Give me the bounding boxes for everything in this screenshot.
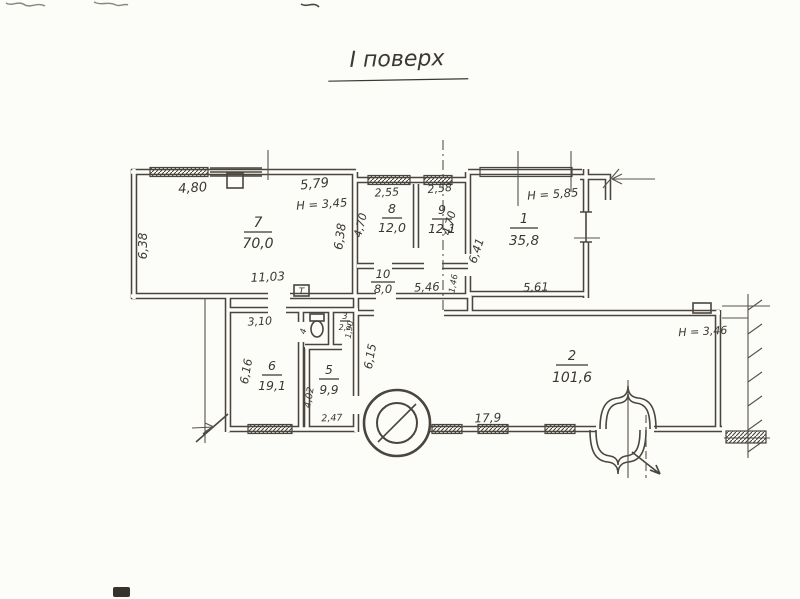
dim-door: 1,46 [447, 273, 460, 294]
room2-area: 101,6 [552, 370, 592, 386]
room10-number: 10 [376, 267, 391, 281]
walls-layer [131, 169, 722, 432]
room5-number: 5 [325, 363, 333, 377]
dim-room7-top-right: 5,79 [299, 176, 329, 194]
toilet-tank-fixture [310, 314, 324, 321]
window-room2-bottom-2 [478, 425, 508, 434]
room7-area: 70,0 [242, 236, 273, 252]
room10-area: 8,0 [374, 282, 392, 296]
page-title: І поверх [349, 46, 445, 73]
room8-area: 12,0 [378, 220, 406, 235]
dim-room2-bottom: 17,9 [474, 411, 501, 426]
room7-height: Н = 3,45 [296, 195, 348, 213]
title-underline [328, 79, 468, 81]
walls-inner-layer [131, 169, 722, 432]
room7-number: 7 [254, 215, 263, 231]
dim-room6-top: 3,10 [247, 314, 272, 328]
room1-area: 35,8 [509, 233, 539, 249]
room6-number: 6 [268, 358, 276, 373]
room2-number: 2 [568, 349, 576, 364]
leader-arrow [612, 174, 655, 184]
scan-artifact-mark [6, 3, 45, 6]
window-room2-bottom-3 [545, 425, 575, 434]
wall-extension-lines [722, 306, 770, 438]
scan-artifact-mark [94, 2, 128, 6]
dim-room8-top: 2,55 [374, 185, 399, 199]
dim-room7-bottom: 11,03 [250, 269, 285, 285]
scan-artifact-blob [113, 587, 130, 597]
window-room7-top [150, 168, 208, 177]
dim-room9-top: 2,58 [427, 181, 453, 196]
scan-artifact-mark [301, 4, 319, 7]
room6-area: 19,1 [258, 378, 286, 393]
windows-layer [150, 168, 766, 444]
room4-number: 4 [299, 328, 310, 336]
labels-layer: 7 70,0 4,80 5,79 Н = 3,45 6,38 6,38 11,0… [136, 176, 728, 426]
dim-room7-left: 6,38 [136, 232, 150, 259]
dim-room7-right: 6,38 [331, 222, 349, 251]
room1-height: Н = 5,85 [527, 185, 579, 203]
room8-number: 8 [388, 201, 396, 216]
scan-artifacts [6, 2, 319, 597]
floor-plan-svg: І поверх [0, 0, 800, 599]
plan-title-group: І поверх [328, 46, 469, 81]
window-room8-top [368, 176, 410, 185]
window-room2-bottom-1 [432, 425, 462, 434]
room2-height: Н = 3,46 [678, 324, 728, 340]
entrance-canopy-outer [590, 430, 646, 474]
room5-area: 9,9 [319, 383, 338, 397]
dim-room7-top-left: 4,80 [178, 180, 208, 197]
window-room6-bottom [248, 425, 292, 434]
entrance-canopy-outer-line [596, 430, 640, 465]
dim-room2-left: 6,15 [361, 342, 379, 370]
scanned-floor-plan-page: І поверх [0, 0, 800, 599]
dim-room5-bottom: 2,47 [321, 413, 343, 425]
dim-room6-left: 6,16 [237, 357, 255, 385]
exterior-hatch-bar [726, 431, 766, 443]
toilet-bowl-fixture [311, 321, 323, 337]
room1-number: 1 [520, 212, 528, 227]
dim-corridor: 5,46 [414, 279, 440, 294]
dim-room5-left: 4,02 [302, 386, 317, 409]
dim-room1-bottom: 5,61 [523, 280, 549, 295]
terrain-hatch-right [748, 300, 762, 452]
